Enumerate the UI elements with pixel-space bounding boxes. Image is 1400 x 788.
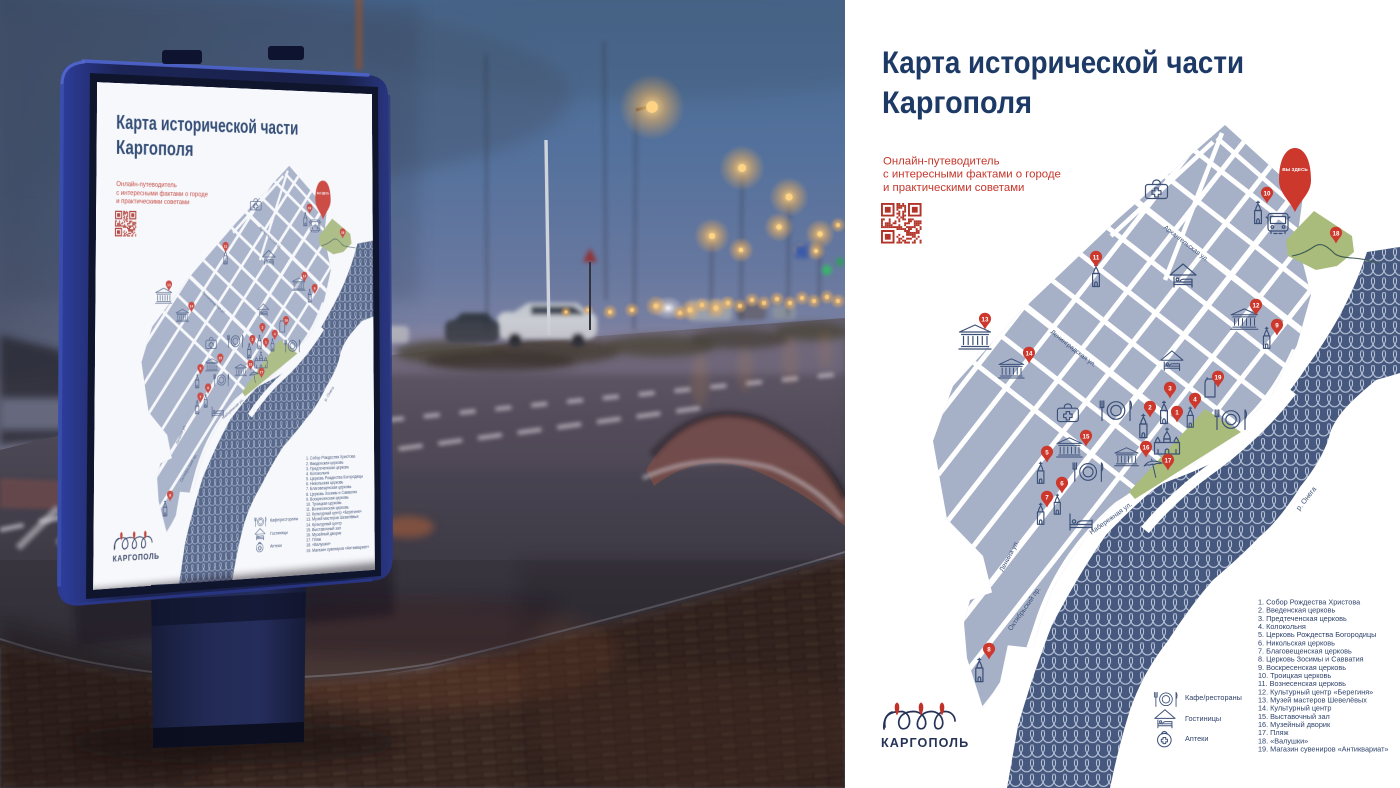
svg-text:11: 11 [1093, 255, 1100, 262]
svg-text:4: 4 [1193, 397, 1197, 404]
svg-text:19. Магазин сувениров «Антиква: 19. Магазин сувениров «Антиквариат» [1258, 745, 1388, 754]
svg-text:19: 19 [1215, 375, 1222, 382]
svg-text:12: 12 [1253, 303, 1260, 310]
svg-text:8: 8 [987, 647, 991, 654]
svg-text:1: 1 [1175, 410, 1179, 417]
svg-text:5: 5 [1045, 450, 1049, 457]
svg-text:14: 14 [1026, 351, 1033, 358]
svg-text:17: 17 [1165, 458, 1172, 465]
svg-text:2: 2 [1148, 405, 1152, 412]
svg-text:Каргополя: Каргополя [882, 84, 1032, 120]
svg-text:Онлайн-путеводитель: Онлайн-путеводитель [883, 156, 1000, 168]
svg-text:с интересными фактами о городе: с интересными фактами о городе [883, 169, 1061, 181]
svg-text:Карта исторической части: Карта исторической части [882, 44, 1244, 80]
svg-text:7: 7 [1045, 495, 1049, 502]
svg-text:10: 10 [1264, 191, 1271, 198]
svg-text:ВЫ ЗДЕСЬ: ВЫ ЗДЕСЬ [1282, 167, 1308, 172]
svg-text:и практическими советами: и практическими советами [883, 182, 1024, 194]
svg-text:13: 13 [982, 317, 989, 324]
svg-text:3: 3 [1168, 386, 1172, 393]
svg-text:Аптеки: Аптеки [1185, 734, 1208, 743]
svg-text:16: 16 [1143, 445, 1150, 452]
svg-text:Кафе/рестораны: Кафе/рестораны [1185, 693, 1242, 702]
svg-text:9: 9 [1275, 323, 1279, 330]
svg-text:6: 6 [1060, 481, 1064, 488]
svg-text:15: 15 [1083, 434, 1090, 441]
svg-text:18: 18 [1333, 231, 1340, 238]
svg-text:КАРГОПОЛЬ: КАРГОПОЛЬ [881, 736, 969, 750]
svg-text:Гостиницы: Гостиницы [1185, 714, 1221, 723]
